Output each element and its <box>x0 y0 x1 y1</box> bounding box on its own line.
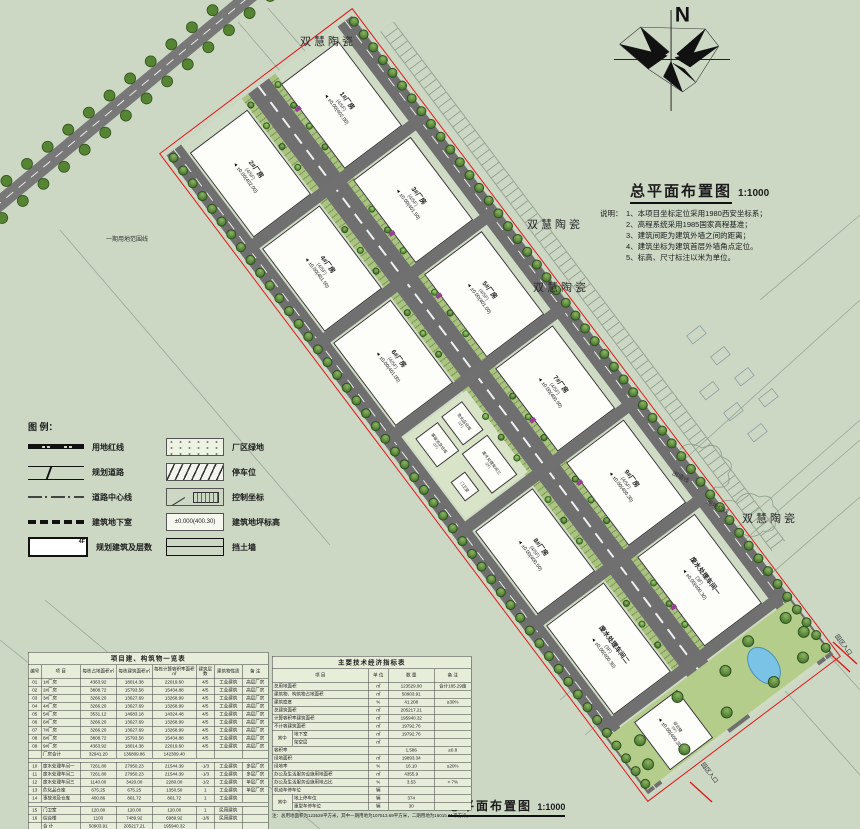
table-cell: 废水处理车间二 <box>41 770 80 778</box>
indicator-table-wrap: 主要技术经济指标表项 目单 位数 量备 注总用地面积㎡123529.00合计18… <box>272 656 472 819</box>
table-cell <box>434 802 471 810</box>
table-row: 14事故池及仓库400.86801.72801.721工业建筑 <box>28 794 268 802</box>
table-cell: 工业建筑 <box>214 702 242 710</box>
table-cell: 高层厂房 <box>242 678 268 686</box>
north-arrow-icon: N <box>612 2 732 117</box>
item-cell: 容积率 <box>272 746 368 754</box>
legend-parking-swatch <box>166 463 224 481</box>
table-cell: 7489.92 <box>116 814 152 822</box>
legend-item: 道路中心线 <box>28 489 152 505</box>
table-cell: 10 <box>28 762 41 770</box>
table-cell: ㎡ <box>368 682 388 690</box>
table-cell: 4/5 <box>196 702 214 710</box>
table-row: 044#厂房3266.2013627.6913268.994/5工业建筑高层厂房 <box>28 702 268 710</box>
table-cell <box>242 794 268 802</box>
table-row: 总建筑面积㎡205217.21 <box>272 706 471 714</box>
table-cell: 工业建筑 <box>214 710 242 718</box>
note-text: 3、建筑间距为建筑外墙之间的距离； <box>626 230 750 241</box>
item-cell: 建筑密度 <box>272 698 368 706</box>
table-cell: 1 <box>196 806 214 814</box>
group-cell: 其中 <box>272 794 292 810</box>
table-cell: 1.586 <box>388 746 434 754</box>
table-cell: -1/2 <box>196 778 214 786</box>
table-cell: 4/5 <box>196 686 214 694</box>
tree-icon <box>141 93 152 104</box>
table-row: 不计容建筑面积㎡19792.76 <box>272 722 471 730</box>
table-cell: 400.86 <box>80 794 116 802</box>
item-cell: 建筑物、构筑物占地面积 <box>272 690 368 698</box>
table-cell <box>434 794 471 802</box>
table-row: 099#厂房4363.9218014.3822019.604/5工业建筑高层厂房 <box>28 742 268 750</box>
table-cell: ≤20% <box>434 762 471 770</box>
tree-icon <box>207 5 218 16</box>
table-cell: 03 <box>28 694 41 702</box>
table-cell: 123529.00 <box>388 682 434 690</box>
table-cell: 7#厂房 <box>41 726 80 734</box>
table-cell <box>434 690 471 698</box>
table-row: 011#厂房4363.9218014.3822019.604/5工业建筑高层厂房 <box>28 678 268 686</box>
table-cell: -1/6 <box>196 814 214 822</box>
legend-item-label: 规划道路 <box>92 467 124 478</box>
table-cell: 13627.69 <box>116 718 152 726</box>
table-cell: 工业建筑 <box>214 778 242 786</box>
neighbor-label: 双慧陶瓷 <box>527 216 583 232</box>
table-cell: 13268.99 <box>152 694 196 702</box>
tree-icon <box>1 175 12 186</box>
table-cell <box>368 746 388 754</box>
note-label <box>600 219 626 230</box>
table-cell: ㎡ <box>368 754 388 762</box>
table-row: 容积率1.586≥0.8 <box>272 746 471 754</box>
table-cell: 工业建筑 <box>214 742 242 750</box>
table-cell: 1350.50 <box>152 786 196 794</box>
table-title: 项目建、构筑物一览表 <box>28 652 268 665</box>
table-cell: 7261.80 <box>80 762 116 770</box>
table-cell: 19792.76 <box>388 722 434 730</box>
table-cell: 21544.39 <box>152 762 196 770</box>
table-cell: 1140.00 <box>80 778 116 786</box>
sheet-title: 总平面布置图 <box>630 180 732 204</box>
table-cell: 综合楼 <box>41 814 80 822</box>
table-cell: 205217.21 <box>116 822 152 829</box>
table-cell: ㎡ <box>368 738 388 746</box>
table-cell: 高层厂房 <box>242 742 268 750</box>
note-label <box>600 252 626 263</box>
table-cell: 高层厂房 <box>242 686 268 694</box>
tree-icon <box>203 42 214 53</box>
table-cell: 18014.38 <box>116 742 152 750</box>
sheet-scale: 1:1000 <box>738 188 769 199</box>
table-cell: % <box>368 698 388 706</box>
item-cell: 架空层 <box>292 738 368 746</box>
table-cell: 05 <box>28 710 41 718</box>
table-cell <box>434 706 471 714</box>
item-cell: 地下室 <box>292 730 368 738</box>
tree-icon <box>244 8 255 19</box>
table-title: 主要技术经济指标表 <box>272 656 471 669</box>
table-row: 绿地率%16.10≤20% <box>272 762 471 770</box>
item-cell: 总用地面积 <box>272 682 368 690</box>
table-cell: 06 <box>28 718 41 726</box>
item-cell: 重型车停车位 <box>292 802 368 810</box>
table-cell: 4/5 <box>196 718 214 726</box>
building-list-table: 项目建、构筑物一览表编号项 目每栋占地面积㎡每栋建筑面积㎡每栋计算容积率面积㎡建… <box>28 652 269 829</box>
legend-green-swatch <box>166 438 224 456</box>
table-cell: 1#厂房 <box>41 678 80 686</box>
item-cell: 不计容建筑面积 <box>272 722 368 730</box>
note-line: 4、建筑坐标为建筑首层外墙角点定位。 <box>600 241 830 252</box>
item-cell: 办公及生活服务设施用地占比 <box>272 778 368 786</box>
table-cell: 高层厂房 <box>242 710 268 718</box>
table-cell: 辆 <box>368 786 388 794</box>
table-cell: ㎡ <box>368 706 388 714</box>
table-cell: 374 <box>388 794 434 802</box>
table-note: 注：总用地面积为123529平方米，其中一期用地为107513.69平方米，二期… <box>272 812 472 819</box>
tree-icon <box>63 124 74 135</box>
legend-item-label: 挡土墙 <box>232 542 256 553</box>
table-cell: 21544.39 <box>152 770 196 778</box>
legend-item-label: 停车位 <box>232 467 256 478</box>
title-block: 总平面布置图1:1000 <box>630 180 769 204</box>
table-cell: 8#厂房 <box>41 734 80 742</box>
table-cell: 高层厂房 <box>242 694 268 702</box>
legend-retwall-swatch <box>166 538 224 556</box>
table-row: 厂房合计32941.20136809.86142309.40 <box>28 750 268 758</box>
table-cell: 13268.99 <box>152 726 196 734</box>
table-cell: 801.72 <box>152 794 196 802</box>
note-text: 2、高程系统采用1985国家高程基准； <box>626 219 752 230</box>
table-cell: 民用建筑 <box>214 806 242 814</box>
table-cell: 危化品仓库 <box>41 786 80 794</box>
table-cell: 13268.99 <box>152 702 196 710</box>
table-cell: 1 <box>196 794 214 802</box>
table-row: 15门卫室120.00120.00120.001民用建筑 <box>28 806 268 814</box>
building-name: 废水处理车间二 <box>597 624 631 665</box>
table-cell: 门卫室 <box>41 806 80 814</box>
table-row: 其中地下室㎡19792.76 <box>272 730 471 738</box>
table-row: 10废水处理车间一7261.8027950.2321544.39-1/3工业建筑… <box>28 762 268 770</box>
table-cell: 工业建筑 <box>214 686 242 694</box>
note-line: 2、高程系统采用1985国家高程基准； <box>600 219 830 230</box>
table-cell: 3266.20 <box>80 702 116 710</box>
indicator-table: 主要技术经济指标表项 目单 位数 量备 注总用地面积㎡123529.00合计18… <box>272 656 472 811</box>
table-cell: % <box>368 778 388 786</box>
tree-icon <box>125 73 136 84</box>
table-cell: 120.00 <box>80 806 116 814</box>
legend-item: 建筑地下室 <box>28 514 152 530</box>
table-cell: 工业建筑 <box>214 718 242 726</box>
column-header: 建筑物性质 <box>214 665 242 679</box>
table-cell: 5#厂房 <box>41 710 80 718</box>
neighbor-label: 双慧陶瓷 <box>300 33 356 49</box>
table-cell: 3266.20 <box>80 694 116 702</box>
table-cell: 工业建筑 <box>214 734 242 742</box>
table-row: 11废水处理车间二7261.8027950.2321544.39-1/3工业建筑… <box>28 770 268 778</box>
table-cell: 3808.72 <box>80 686 116 694</box>
table-cell: 136809.86 <box>116 750 152 758</box>
table-cell: 09 <box>28 742 41 750</box>
note-text: 1、本项目坐标定位采用1980西安坐标系； <box>626 208 767 219</box>
table-cell: 4355.9 <box>388 770 434 778</box>
table-row: 办公及生活服务设施用地面积㎡4355.9 <box>272 770 471 778</box>
table-cell <box>434 738 471 746</box>
table-row: 088#厂房3808.7215793.5815434.884/5工业建筑高层厂房 <box>28 734 268 742</box>
column-header: 建筑层数 <box>196 665 214 679</box>
table-cell: 675.25 <box>116 786 152 794</box>
table-cell: 辆 <box>368 794 388 802</box>
table-cell <box>242 750 268 758</box>
table-cell: 32941.20 <box>80 750 116 758</box>
tree-icon <box>223 25 234 36</box>
column-header: 项 目 <box>272 669 368 683</box>
table-cell: 2#厂房 <box>41 686 80 694</box>
table-cell: 11 <box>28 770 41 778</box>
table-cell: 多层厂房 <box>242 762 268 770</box>
table-row: 绿地面积㎡19893.34 <box>272 754 471 762</box>
table-cell: 19792.76 <box>388 730 434 738</box>
table-cell: 08 <box>28 734 41 742</box>
table-cell: ㎡ <box>368 714 388 722</box>
note-line: 5、标高、尺寸标注以米为单位。 <box>600 252 830 263</box>
table-cell: 合计185.29亩 <box>434 682 471 690</box>
building-list-table-wrap: 项目建、构筑物一览表编号项 目每栋占地面积㎡每栋建筑面积㎡每栋计算容积率面积㎡建… <box>28 652 269 829</box>
table-cell: 142309.40 <box>152 750 196 758</box>
legend-item-label: 道路中心线 <box>92 492 132 503</box>
table-cell: 13627.69 <box>116 694 152 702</box>
table-cell: 废水处理车间一 <box>41 762 80 770</box>
table-cell: 15793.58 <box>116 734 152 742</box>
neighbor-label: 双慧陶瓷 <box>742 510 798 526</box>
table-cell: 工业建筑 <box>214 726 242 734</box>
table-cell: 工业建筑 <box>214 770 242 778</box>
table-cell: 4#厂房 <box>41 702 80 710</box>
table-cell: 14324.48 <box>152 710 196 718</box>
table-cell: 41.208 <box>388 698 434 706</box>
table-cell: 14 <box>28 794 41 802</box>
item-cell: 绿地率 <box>272 762 368 770</box>
legend-basement-swatch <box>28 514 84 530</box>
table-cell: 04 <box>28 702 41 710</box>
table-row: 其中地上停车位辆374 <box>272 794 471 802</box>
table-cell: 4/5 <box>196 742 214 750</box>
item-cell: 办公及生活服务设施用地面积 <box>272 770 368 778</box>
legend-item: 规划道路 <box>28 464 152 480</box>
column-header: 项 目 <box>41 665 80 679</box>
table-row: 建筑密度%41.208≥30% <box>272 698 471 706</box>
table-cell <box>214 750 242 758</box>
table-cell: 18014.38 <box>116 678 152 686</box>
table-row: 架空层㎡ <box>272 738 471 746</box>
note-text: 4、建筑坐标为建筑首层外墙角点定位。 <box>626 241 758 252</box>
table-cell: 02 <box>28 686 41 694</box>
table-cell: 高层厂房 <box>242 718 268 726</box>
table-cell: 195940.32 <box>152 822 196 829</box>
legend-item-label: 建筑地坪标高 <box>232 517 280 528</box>
table-row: 13危化品仓库675.25675.251350.501工业建筑单层厂房 <box>28 786 268 794</box>
table-cell: 205217.21 <box>388 706 434 714</box>
tree-icon <box>17 195 28 206</box>
note-line: 3、建筑间距为建筑外墙之间的距离； <box>600 230 830 241</box>
tree-icon <box>0 213 8 224</box>
item-cell: 机动车停车位 <box>272 786 368 794</box>
column-header: 备 注 <box>242 665 268 679</box>
tree-icon <box>38 178 49 189</box>
table-cell: 高层厂房 <box>242 726 268 734</box>
table-cell: -1/3 <box>196 770 214 778</box>
notes-block: 说明：1、本项目坐标定位采用1980西安坐标系；2、高程系统采用1985国家高程… <box>600 208 830 263</box>
table-row: 022#厂房3808.7215793.5815434.884/5工业建筑高层厂房 <box>28 686 268 694</box>
column-header: 编号 <box>28 665 41 679</box>
table-cell <box>28 822 41 829</box>
table-cell: 废水处理车间三 <box>41 778 80 786</box>
table-cell: 50903.91 <box>80 822 116 829</box>
tree-icon <box>265 0 276 2</box>
table-cell: 30 <box>388 802 434 810</box>
table-cell: 120.00 <box>152 806 196 814</box>
table-cell: ≥30% <box>434 698 471 706</box>
table-cell <box>434 754 471 762</box>
table-cell: ㎡ <box>368 730 388 738</box>
table-cell: 9#厂房 <box>41 742 80 750</box>
table-cell <box>434 714 471 722</box>
table-cell: 高层厂房 <box>242 702 268 710</box>
table-row: 066#厂房3266.2013627.6913268.994/5工业建筑高层厂房 <box>28 718 268 726</box>
table-cell: 15434.88 <box>152 686 196 694</box>
table-cell: 13627.69 <box>116 726 152 734</box>
legend-centerline-swatch <box>28 489 84 505</box>
table-cell: 工业建筑 <box>214 794 242 802</box>
phase1-boundary-label: 一期用地范围线 <box>106 234 148 243</box>
tree-icon <box>59 161 70 172</box>
table-cell: 801.72 <box>116 794 152 802</box>
table-cell: 4/5 <box>196 734 214 742</box>
table-cell: 14683.18 <box>116 710 152 718</box>
table-cell: 13 <box>28 786 41 794</box>
table-cell: < 7% <box>434 778 471 786</box>
legend-title: 图 例： <box>28 420 328 433</box>
note-label <box>600 241 626 252</box>
table-cell: 13627.69 <box>116 702 152 710</box>
table-cell: 多层厂房 <box>242 770 268 778</box>
table-cell: 工业建筑 <box>214 694 242 702</box>
legend-item-label: 规划建筑及层数 <box>96 542 152 553</box>
item-cell: 地上停车位 <box>292 794 368 802</box>
table-row: 重型车停车位辆30 <box>272 802 471 810</box>
tree-icon <box>186 22 197 33</box>
legend-item: 停车位 <box>166 464 280 480</box>
legend-item: 规划建筑及层数 <box>28 539 152 555</box>
table-row: 077#厂房3266.2013627.6913268.994/5工业建筑高层厂房 <box>28 726 268 734</box>
table-cell <box>242 822 268 829</box>
table-cell: 事故池及仓库 <box>41 794 80 802</box>
table-cell: 高层厂房 <box>242 734 268 742</box>
table-cell: 1 <box>196 786 214 794</box>
table-cell: 3.53 <box>388 778 434 786</box>
table-cell: 4363.92 <box>80 678 116 686</box>
table-cell: 15793.58 <box>116 686 152 694</box>
table-cell <box>388 738 434 746</box>
legend-bldg-swatch <box>28 537 88 557</box>
note-text: 5、标高、尺寸标注以米为单位。 <box>626 252 735 263</box>
column-header: 备 注 <box>434 669 471 683</box>
tree-icon <box>79 144 90 155</box>
table-cell: 单层厂房 <box>242 778 268 786</box>
legend-item-label: 厂区绿地 <box>232 442 264 453</box>
table-cell: 22019.60 <box>152 678 196 686</box>
table-cell <box>196 822 214 829</box>
table-cell: 4/5 <box>196 726 214 734</box>
table-cell: 单层厂房 <box>242 786 268 794</box>
note-line: 说明：1、本项目坐标定位采用1980西安坐标系； <box>600 208 830 219</box>
table-cell: 195940.32 <box>388 714 434 722</box>
table-cell <box>242 806 268 814</box>
building-name: 门卫室 <box>459 480 470 493</box>
table-cell: 16.10 <box>388 762 434 770</box>
table-cell: 6989.92 <box>152 814 196 822</box>
table-cell: % <box>368 762 388 770</box>
table-cell: ㎡ <box>368 770 388 778</box>
legend-item: 控制坐标 <box>166 489 280 505</box>
table-cell: 675.25 <box>80 786 116 794</box>
table-cell: 12 <box>28 778 41 786</box>
table-cell: 27950.23 <box>116 762 152 770</box>
column-header: 数 量 <box>388 669 434 683</box>
table-cell: 13268.99 <box>152 718 196 726</box>
tree-icon <box>42 141 53 152</box>
legend: 图 例： 用地红线规划道路道路中心线建筑地下室规划建筑及层数 厂区绿地停车位控制… <box>28 420 328 555</box>
legend-item: 厂区绿地 <box>166 439 280 455</box>
table-cell: 3420.00 <box>116 778 152 786</box>
tree-icon <box>100 127 111 138</box>
table-cell: 120.00 <box>116 806 152 814</box>
table-cell: 16 <box>28 814 41 822</box>
item-cell: 总建筑面积 <box>272 706 368 714</box>
table-row: 12废水处理车间三1140.003420.002280.00-1/2工业建筑单层… <box>28 778 268 786</box>
column-header: 每栋建筑面积㎡ <box>116 665 152 679</box>
table-cell <box>434 722 471 730</box>
site-plan-sheet: 1#厂房(4/5F)◄ ±0.00(402.00)3#厂房(4/5F)◄ ±0.… <box>0 0 860 829</box>
table-cell <box>214 822 242 829</box>
table-cell: 4/5 <box>196 710 214 718</box>
neighbor-label: 双慧陶瓷 <box>533 279 589 295</box>
tree-icon <box>120 110 131 121</box>
legend-item: ±0.000(400.30)建筑地坪标高 <box>166 514 280 530</box>
column-header: 单 位 <box>368 669 388 683</box>
table-cell: 22019.60 <box>152 742 196 750</box>
table-cell: 6#厂房 <box>41 718 80 726</box>
table-row: 总用地面积㎡123529.00合计185.29亩 <box>272 682 471 690</box>
table-cell: ≥0.8 <box>434 746 471 754</box>
table-row: 机动车停车位辆 <box>272 786 471 794</box>
item-cell: 绿地面积 <box>272 754 368 762</box>
table-cell <box>196 750 214 758</box>
table-row: 055#厂房3531.1214683.1814324.484/5工业建筑高层厂房 <box>28 710 268 718</box>
legend-redline-swatch <box>28 439 84 455</box>
table-row: 办公及生活服务设施用地占比%3.53< 7% <box>272 778 471 786</box>
item-cell: 计算容积率建筑面积 <box>272 714 368 722</box>
table-cell: 工业建筑 <box>214 762 242 770</box>
table-row: 合 计50903.91205217.21195940.32 <box>28 822 268 829</box>
table-cell: 辆 <box>368 802 388 810</box>
table-cell <box>242 814 268 822</box>
table-cell: 工业建筑 <box>214 786 242 794</box>
tree-icon <box>83 107 94 118</box>
table-cell <box>434 770 471 778</box>
north-letter: N <box>675 3 690 26</box>
table-cell: 4/5 <box>196 678 214 686</box>
footer-title-scale: 1:1000 <box>537 802 565 812</box>
table-cell: 15434.88 <box>152 734 196 742</box>
